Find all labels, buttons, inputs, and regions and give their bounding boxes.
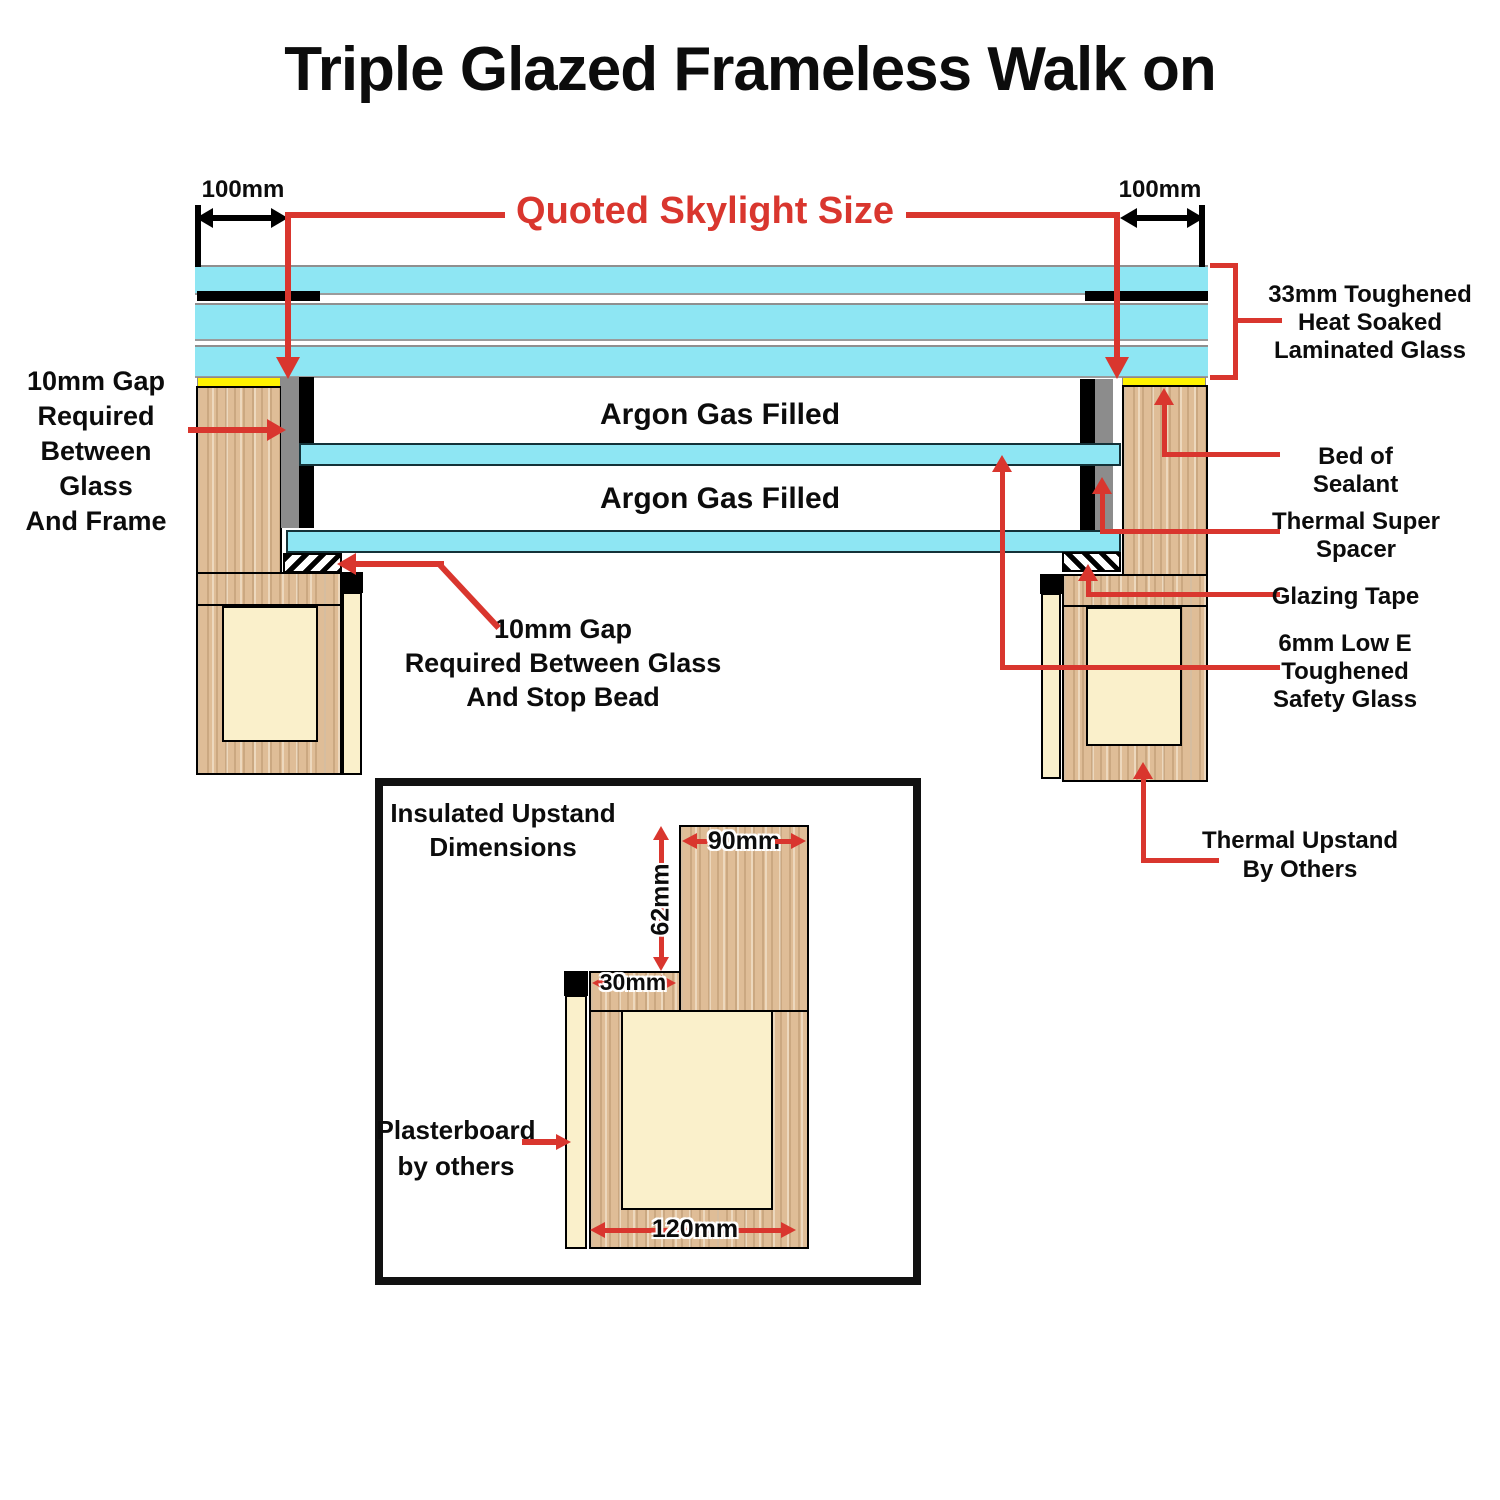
gap-frame-arrowhead: [267, 419, 286, 441]
quoted-skylight-size-label: Quoted Skylight Size: [440, 190, 970, 233]
thermal-upstand-arrowhead: [1133, 762, 1153, 779]
quoted-drop-line-right: [1114, 212, 1120, 359]
gap-stopbead-line-horizontal: [354, 561, 444, 567]
thermal-upstand-label: Thermal Upstand By Others: [1200, 826, 1400, 884]
dim-100mm-left-line: [210, 215, 274, 221]
dim-120mm-label: 120mm: [640, 1215, 750, 1244]
bed-sealant-line-vertical: [1162, 398, 1167, 457]
plasterboard-label: Plasterboard by others: [375, 1112, 537, 1184]
super-spacer-line-horizontal: [1100, 529, 1280, 534]
stop-bead-cap-left: [342, 572, 363, 593]
inset-insulation-panel: [621, 1010, 773, 1210]
low-e-line-horizontal: [1000, 665, 1280, 670]
page-title: Triple Glazed Frameless Walk on: [0, 34, 1500, 105]
inset-bead-cap: [564, 971, 588, 996]
super-spacer-line-vertical: [1100, 487, 1105, 534]
dim-90mm-arrowhead-right: [791, 833, 806, 849]
gap-frame-arrow-line: [188, 427, 270, 433]
quoted-arrowhead-right: [1105, 357, 1129, 379]
super-spacer-arrowhead: [1092, 477, 1112, 494]
gap-stopbead-arrowhead: [337, 553, 356, 575]
quoted-line-left: [290, 212, 505, 218]
argon-label-top: Argon Gas Filled: [470, 398, 970, 432]
glazing-tape-left: [283, 553, 342, 573]
gap-frame-label: 10mm Gap Required Between Glass And Fram…: [0, 364, 192, 539]
laminated-glass-pane-2: [195, 303, 1208, 341]
dim-62mm-label: 62mm: [647, 860, 676, 940]
glazing-tape-label: Glazing Tape: [1268, 583, 1423, 611]
stop-bead-left: [342, 592, 362, 775]
dim-30mm-label: 30mm: [597, 969, 669, 996]
plasterboard-arrowhead: [556, 1134, 571, 1150]
inset-title: Insulated Upstand Dimensions: [383, 796, 623, 864]
dim-ext-line-left: [195, 205, 201, 267]
laminated-glass-pane-1: [195, 265, 1208, 295]
glass-edge-band-right: [1085, 291, 1208, 301]
dim-100mm-left-label: 100mm: [197, 176, 289, 204]
stop-bead-right: [1041, 593, 1061, 779]
bed-sealant-label: Bed of Sealant: [1278, 443, 1433, 499]
glazing-tape-arrowhead: [1078, 564, 1098, 581]
inset-plasterboard-strip: [565, 995, 587, 1249]
super-spacer-label: Thermal Super Spacer: [1270, 508, 1442, 564]
laminated-bracket-bottom: [1210, 375, 1238, 380]
glazing-tape-line-horizontal: [1086, 592, 1280, 597]
spacer-gray-left: [281, 377, 299, 528]
thermal-upstand-line-vertical: [1141, 772, 1146, 863]
quoted-drop-line-left: [285, 212, 291, 359]
low-e-arrowhead: [992, 455, 1012, 472]
dim-100mm-right-label: 100mm: [1114, 176, 1206, 204]
bed-sealant-arrowhead: [1154, 388, 1174, 405]
gap-stopbead-label: 10mm Gap Required Between Glass And Stop…: [390, 612, 736, 714]
upstand-post-left: [196, 386, 282, 576]
low-e-label: 6mm Low E Toughened Safety Glass: [1260, 630, 1430, 714]
dim-120mm-arrowhead-right: [781, 1222, 796, 1238]
argon-label-bottom: Argon Gas Filled: [470, 482, 970, 516]
dim-100mm-right-line: [1134, 215, 1190, 221]
dim-ext-line-right: [1199, 205, 1205, 267]
frame-insulation-left: [222, 606, 318, 742]
bed-sealant-line-horizontal: [1162, 452, 1280, 457]
frame-rail-left: [196, 572, 342, 606]
laminated-glass-label: 33mm Toughened Heat Soaked Laminated Gla…: [1256, 281, 1484, 365]
quoted-line-right: [906, 212, 1119, 218]
skylight-cross-section-diagram: Triple Glazed Frameless Walk on Argon Ga…: [0, 0, 1500, 1500]
stop-bead-cap-right: [1040, 574, 1062, 594]
bottom-glass-pane: [286, 530, 1121, 553]
quoted-arrowhead-left: [276, 357, 300, 379]
glass-edge-band-left: [197, 291, 320, 301]
low-e-line-vertical: [1000, 466, 1005, 670]
frame-insulation-right: [1086, 607, 1182, 746]
laminated-glass-pane-3: [195, 345, 1208, 378]
dim-100mm-right-arrowhead-left: [1120, 208, 1137, 228]
plasterboard-arrow-line: [522, 1139, 558, 1145]
